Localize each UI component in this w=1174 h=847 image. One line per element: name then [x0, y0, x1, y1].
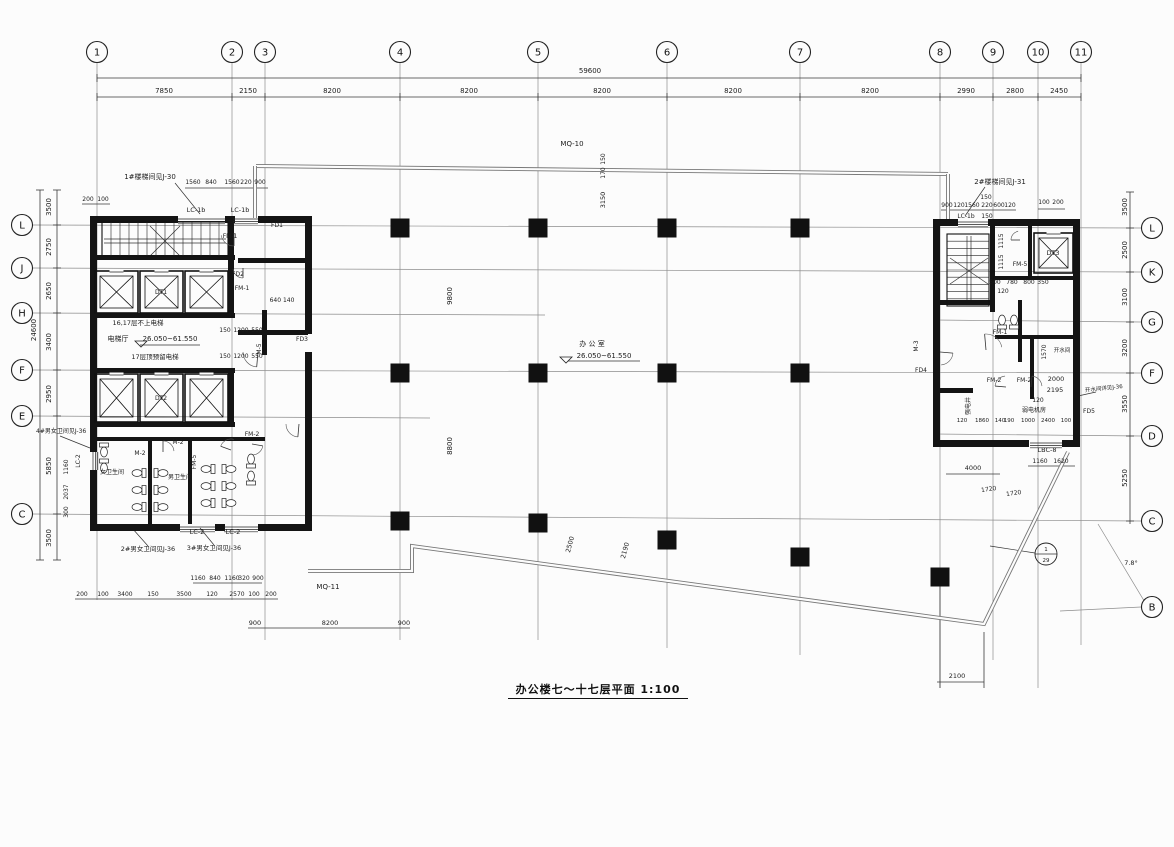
svg-text:350: 350: [1037, 279, 1049, 286]
svg-text:2400: 2400: [1041, 418, 1055, 424]
svg-text:3: 3: [262, 48, 268, 59]
svg-text:550: 550: [251, 327, 263, 334]
svg-text:9800: 9800: [446, 287, 454, 305]
svg-text:26.050~61.550: 26.050~61.550: [577, 352, 632, 360]
svg-text:100: 100: [248, 591, 260, 598]
svg-text:LC-2: LC-2: [75, 454, 82, 468]
svg-text:3500: 3500: [176, 591, 191, 598]
svg-text:2100: 2100: [949, 672, 966, 680]
svg-text:办 公 室: 办 公 室: [579, 339, 604, 348]
svg-text:2500: 2500: [1121, 241, 1129, 259]
svg-text:8200: 8200: [323, 87, 341, 95]
svg-text:3150: 3150: [599, 192, 607, 209]
svg-text:C: C: [1149, 517, 1156, 528]
svg-text:3400: 3400: [117, 591, 132, 598]
svg-text:150: 150: [147, 591, 159, 598]
svg-text:900: 900: [252, 575, 264, 582]
svg-text:120: 120: [953, 202, 965, 209]
svg-text:开水间详见J-36: 开水间详见J-36: [1085, 382, 1124, 394]
walls-layer: [90, 216, 1080, 531]
svg-text:59600: 59600: [579, 67, 601, 75]
svg-text:3400: 3400: [45, 333, 53, 351]
svg-text:8200: 8200: [322, 619, 339, 627]
svg-text:LBC-8: LBC-8: [1038, 446, 1057, 454]
svg-text:2#男女卫间见J-36: 2#男女卫间见J-36: [121, 544, 175, 553]
svg-text:3500: 3500: [45, 529, 53, 547]
svg-text:120: 120: [997, 288, 1009, 295]
svg-text:150: 150: [981, 213, 993, 220]
svg-text:1860: 1860: [975, 418, 989, 424]
svg-text:300: 300: [63, 506, 70, 518]
svg-text:3#男女卫间见J-36: 3#男女卫间见J-36: [187, 543, 241, 552]
svg-text:2#楼梯间见J-31: 2#楼梯间见J-31: [974, 177, 1026, 186]
svg-text:1570: 1570: [1041, 344, 1048, 359]
svg-text:10: 10: [1032, 48, 1045, 59]
svg-text:8800: 8800: [446, 437, 454, 455]
svg-text:29: 29: [1043, 558, 1050, 564]
svg-text:7850: 7850: [155, 87, 173, 95]
svg-text:J: J: [20, 264, 24, 275]
svg-text:1200: 1200: [233, 353, 248, 360]
svg-text:LC-2: LC-2: [226, 528, 241, 536]
svg-text:840: 840: [205, 179, 217, 186]
svg-text:2150: 2150: [239, 87, 257, 95]
svg-text:5: 5: [535, 48, 541, 59]
svg-text:1200: 1200: [233, 327, 248, 334]
svg-text:1560: 1560: [964, 202, 979, 209]
svg-text:640 140: 640 140: [270, 297, 295, 304]
svg-text:FM-5: FM-5: [191, 455, 198, 470]
svg-text:FD2: FD2: [232, 271, 244, 278]
svg-text:120: 120: [957, 418, 968, 424]
svg-text:900: 900: [941, 202, 953, 209]
svg-text:女卫生间: 女卫生间: [100, 468, 124, 476]
svg-text:8200: 8200: [460, 87, 478, 95]
svg-text:电梯厅: 电梯厅: [108, 334, 129, 343]
plumbing-fixtures-layer: [100, 315, 1019, 512]
svg-text:780: 780: [1006, 279, 1018, 286]
svg-text:1#楼梯间见J-30: 1#楼梯间见J-30: [124, 172, 176, 181]
svg-text:FM-2: FM-2: [987, 377, 1002, 384]
svg-text:6: 6: [664, 48, 670, 59]
svg-text:D: D: [1148, 432, 1156, 443]
svg-text:H: H: [18, 309, 26, 320]
floor-plan-svg: 1234567891011LJHFECLKGFDCB 5960078502150…: [0, 0, 1174, 847]
svg-text:FM-2: FM-2: [245, 431, 260, 438]
svg-text:1160: 1160: [190, 575, 205, 582]
svg-text:2950: 2950: [45, 385, 53, 403]
svg-text:2: 2: [229, 48, 235, 59]
svg-text:120: 120: [206, 591, 218, 598]
svg-text:2450: 2450: [1050, 87, 1068, 95]
svg-text:G: G: [1148, 318, 1156, 329]
svg-text:100: 100: [1061, 418, 1072, 424]
columns-layer: [391, 219, 950, 587]
svg-text:2037: 2037: [63, 484, 70, 499]
svg-text:26.050~61.550: 26.050~61.550: [143, 335, 198, 343]
svg-text:220: 220: [240, 179, 252, 186]
svg-text:2750: 2750: [45, 238, 53, 256]
svg-text:F: F: [19, 366, 25, 377]
svg-text:FD4: FD4: [915, 367, 927, 374]
svg-text:2000: 2000: [1048, 375, 1065, 383]
svg-text:3500: 3500: [1121, 198, 1129, 216]
floor-plan-canvas: 1234567891011LJHFECLKGFDCB 5960078502150…: [0, 0, 1174, 847]
svg-text:320: 320: [238, 575, 250, 582]
svg-text:L: L: [1149, 224, 1155, 235]
svg-text:M-3: M-3: [913, 340, 920, 351]
svg-text:3200: 3200: [1121, 339, 1129, 357]
svg-text:1115: 1115: [998, 233, 1005, 248]
svg-text:17层顶预留电梯: 17层顶预留电梯: [131, 352, 179, 361]
svg-text:16,17层不上电梯: 16,17层不上电梯: [112, 318, 164, 327]
svg-text:3100: 3100: [1121, 288, 1129, 306]
svg-text:800: 800: [1023, 279, 1035, 286]
svg-text:24600: 24600: [30, 319, 38, 341]
svg-text:2990: 2990: [957, 87, 975, 95]
svg-text:8200: 8200: [861, 87, 879, 95]
svg-text:220: 220: [981, 202, 993, 209]
svg-text:3500: 3500: [45, 198, 53, 216]
svg-text:LC-1b: LC-1b: [957, 213, 975, 220]
svg-text:强电井: 强电井: [964, 397, 972, 415]
svg-text:4#男女卫间见J-36: 4#男女卫间见J-36: [36, 427, 86, 435]
svg-text:4000: 4000: [965, 464, 982, 472]
svg-text:LC-1b: LC-1b: [187, 206, 206, 214]
svg-text:200: 200: [76, 591, 88, 598]
detail-callout-layer: [135, 341, 1057, 565]
svg-text:1720: 1720: [981, 485, 997, 494]
svg-text:1115: 1115: [998, 254, 1005, 269]
svg-text:2650: 2650: [45, 282, 53, 300]
svg-text:170: 170: [600, 167, 607, 179]
svg-text:190: 190: [1004, 418, 1015, 424]
svg-text:K: K: [1149, 268, 1156, 279]
grid-bubbles-layer: 1234567891011LJHFECLKGFDCB: [12, 42, 1163, 618]
svg-text:1: 1: [1044, 547, 1048, 553]
svg-text:LC-2: LC-2: [190, 528, 205, 536]
svg-text:5850: 5850: [45, 457, 53, 475]
svg-text:FM-2: FM-2: [1017, 377, 1032, 384]
svg-text:9: 9: [990, 48, 996, 59]
svg-text:900: 900: [254, 179, 266, 186]
svg-text:M-2: M-2: [134, 450, 145, 457]
svg-text:1720: 1720: [1006, 489, 1022, 498]
svg-text:FM-1: FM-1: [993, 329, 1008, 336]
svg-text:8200: 8200: [724, 87, 742, 95]
svg-text:男卫生间: 男卫生间: [168, 473, 192, 481]
svg-text:FM-1: FM-1: [235, 285, 250, 292]
svg-text:1: 1: [94, 48, 100, 59]
svg-text:1000: 1000: [1021, 418, 1035, 424]
svg-text:1560: 1560: [224, 179, 239, 186]
svg-text:弱电机房: 弱电机房: [1022, 406, 1046, 414]
svg-text:150: 150: [600, 153, 607, 165]
svg-text:7.8°: 7.8°: [1124, 559, 1138, 567]
svg-text:1160: 1160: [63, 459, 70, 474]
svg-text:2190: 2190: [619, 541, 631, 559]
svg-text:2570: 2570: [229, 591, 244, 598]
svg-text:DT3: DT3: [1046, 249, 1059, 257]
svg-text:E: E: [19, 412, 25, 423]
windows-layer: [93, 219, 1062, 532]
svg-text:开水间: 开水间: [1054, 346, 1071, 354]
svg-text:C: C: [19, 510, 26, 521]
svg-text:8: 8: [937, 48, 943, 59]
svg-text:200: 200: [82, 196, 94, 203]
svg-text:11: 11: [1075, 48, 1088, 59]
svg-text:900: 900: [249, 619, 261, 627]
svg-text:150: 150: [219, 353, 231, 360]
svg-text:MQ-10: MQ-10: [560, 140, 583, 148]
svg-text:FD1: FD1: [271, 222, 283, 229]
svg-text:FD3: FD3: [296, 336, 308, 343]
svg-text:M-2: M-2: [172, 439, 183, 446]
svg-text:2800: 2800: [1006, 87, 1024, 95]
svg-text:DT1: DT1: [155, 289, 167, 296]
svg-text:150: 150: [219, 327, 231, 334]
svg-text:8200: 8200: [593, 87, 611, 95]
svg-text:4: 4: [397, 48, 403, 59]
drawing-title: 办公楼七～十七层平面 1:100: [508, 681, 688, 699]
svg-text:500: 500: [989, 279, 1001, 286]
svg-text:FD5: FD5: [1083, 408, 1095, 415]
svg-text:3550: 3550: [1121, 395, 1129, 413]
svg-text:1560: 1560: [185, 179, 200, 186]
svg-text:150: 150: [980, 194, 992, 201]
svg-text:MQ-11: MQ-11: [316, 583, 339, 591]
svg-text:FM-1: FM-1: [223, 233, 238, 240]
svg-text:LC-1b: LC-1b: [231, 206, 250, 214]
svg-text:2500: 2500: [564, 535, 576, 553]
svg-text:600: 600: [993, 202, 1005, 209]
svg-text:100: 100: [97, 591, 109, 598]
svg-text:F: F: [1149, 369, 1155, 380]
svg-text:200: 200: [265, 591, 277, 598]
svg-text:200: 200: [1052, 199, 1064, 206]
svg-text:7: 7: [797, 48, 803, 59]
svg-text:1160: 1160: [1032, 458, 1047, 465]
svg-text:100: 100: [97, 196, 109, 203]
svg-text:L: L: [19, 221, 25, 232]
svg-text:900: 900: [398, 619, 410, 627]
svg-text:B: B: [1149, 603, 1156, 614]
svg-text:120: 120: [1004, 202, 1016, 209]
svg-text:5250: 5250: [1121, 469, 1129, 487]
svg-text:120: 120: [1032, 397, 1044, 404]
svg-text:M-5: M-5: [256, 343, 263, 354]
svg-text:2195: 2195: [1047, 386, 1064, 394]
svg-text:DT2: DT2: [155, 395, 167, 402]
svg-text:1620: 1620: [1053, 458, 1068, 465]
svg-text:FM-5: FM-5: [1013, 261, 1028, 268]
svg-text:840: 840: [209, 575, 221, 582]
svg-text:100: 100: [1038, 199, 1050, 206]
